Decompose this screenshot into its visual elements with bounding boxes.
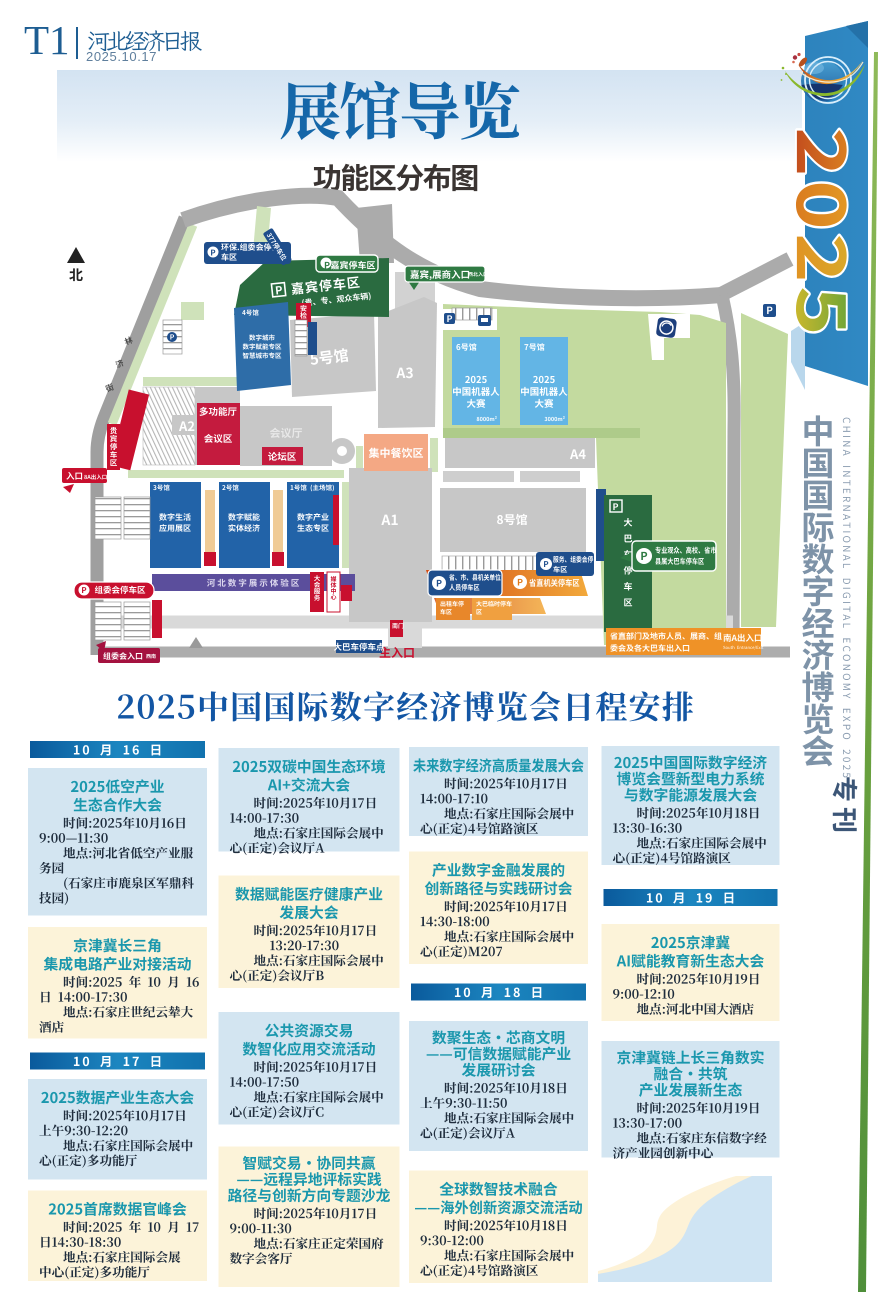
svg-text:T1: T1: [24, 17, 70, 63]
svg-text:2025.10.17: 2025.10.17: [86, 49, 157, 64]
